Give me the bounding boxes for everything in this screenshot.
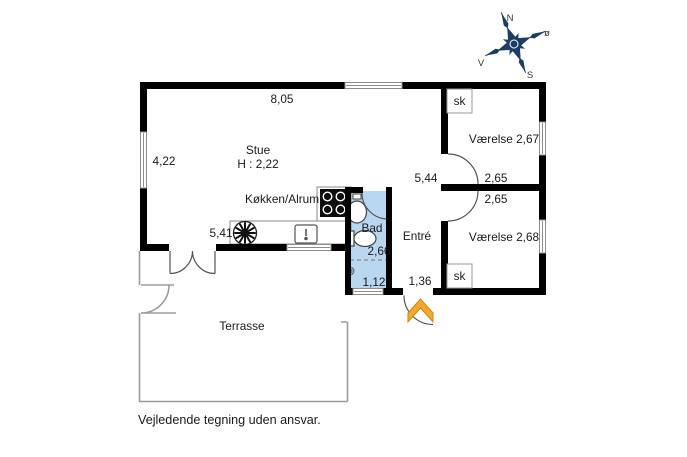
measure-top-width: 8,05 <box>271 92 294 106</box>
window-top <box>345 83 402 89</box>
compass-label-north: N <box>507 13 514 24</box>
compass-label-east: ø <box>544 28 550 39</box>
measure-hall-length: 5,44 <box>415 171 438 185</box>
measure-bedroom2-width: 2,65 <box>485 192 508 206</box>
room-label-bedroom1: Værelse 2,67 <box>469 132 539 146</box>
floorplan-drawing: N ø S V 8,05 4,22 Stue H : 2,22 Køkken/A… <box>0 0 687 457</box>
compass-rose-icon <box>473 0 558 84</box>
room-label-hall: Entré <box>403 229 432 243</box>
compass-label-west: V <box>478 58 485 69</box>
measure-left-height: 4,22 <box>153 154 176 168</box>
measure-kitchen-width: 5,41 <box>210 226 233 240</box>
closet-bottom-label: sk <box>454 269 466 283</box>
terrace-door-arc <box>141 285 176 313</box>
floorplan-page: N ø S V 8,05 4,22 Stue H : 2,22 Køkken/A… <box>0 0 687 457</box>
bedroom1-door-arc <box>448 154 478 184</box>
disclaimer-text: Vejledende tegning uden ansvar. <box>138 413 321 427</box>
measure-bath-width: 1,12 <box>363 275 386 289</box>
window-bedroom1 <box>540 122 546 155</box>
room-label-kitchen: Køkken/Alrum <box>245 192 319 206</box>
room-label-stue: Stue <box>246 143 271 157</box>
compass-label-south: S <box>527 70 533 81</box>
fan-icon <box>234 222 257 245</box>
window-left <box>141 132 147 188</box>
measure-bedroom1-width: 2,65 <box>485 171 508 185</box>
room-label-terrace: Terrasse <box>219 319 265 333</box>
kitchen-sink-icon <box>295 225 317 243</box>
french-door-arcs <box>170 251 215 274</box>
room-label-bedroom2: Værelse 2,68 <box>469 230 540 244</box>
measure-hall-width: 1,36 <box>409 274 432 288</box>
closet-top-label: sk <box>454 94 466 108</box>
measure-bath-length: 2,66 <box>368 244 391 258</box>
window-bath <box>353 289 383 295</box>
bedroom2-door-arc <box>448 191 478 221</box>
ceiling-height-label: H : 2,22 <box>237 157 278 171</box>
window-kitchen <box>287 245 331 251</box>
stove-icon <box>320 189 348 217</box>
room-label-bath: Bad <box>362 221 383 235</box>
entrance-arrow-icon <box>408 299 433 322</box>
window-bedroom2 <box>540 220 546 253</box>
